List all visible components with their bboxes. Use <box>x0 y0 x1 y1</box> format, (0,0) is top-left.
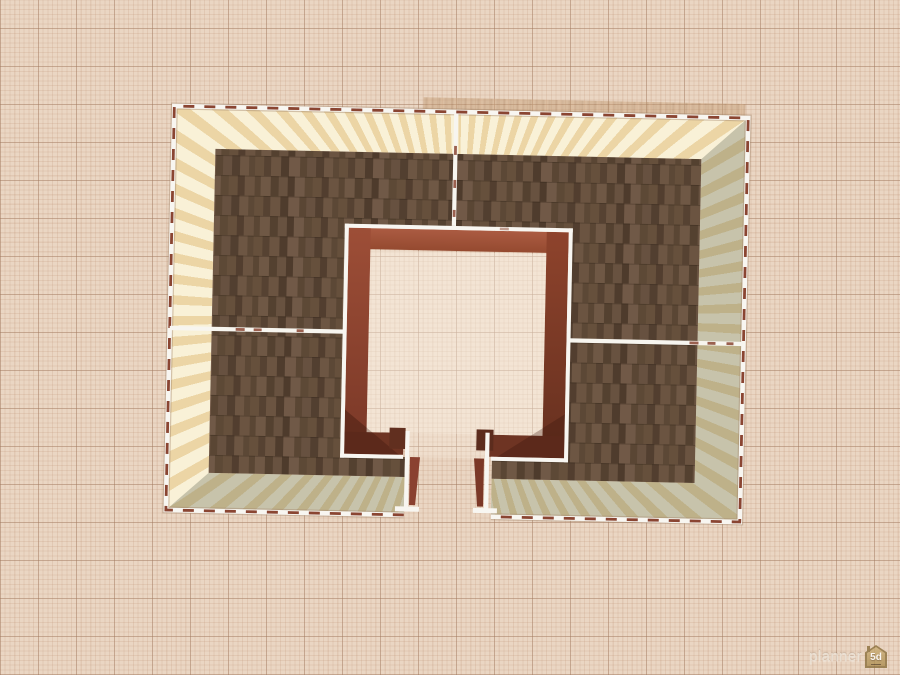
doorway-opening[interactable] <box>409 433 485 459</box>
planner5d-logo-icon: 5d <box>865 645 887 668</box>
building-drawing <box>0 0 900 675</box>
selected-building[interactable] <box>0 0 900 675</box>
badge-underline <box>871 664 881 666</box>
app-window: planner 5d <box>0 0 900 675</box>
floorplan-canvas-grid[interactable]: planner 5d <box>0 0 900 675</box>
courtyard-floor[interactable] <box>367 250 547 436</box>
badge-label: 5d <box>865 652 887 663</box>
watermark-text: planner <box>809 648 862 665</box>
watermark: planner 5d <box>809 645 887 668</box>
